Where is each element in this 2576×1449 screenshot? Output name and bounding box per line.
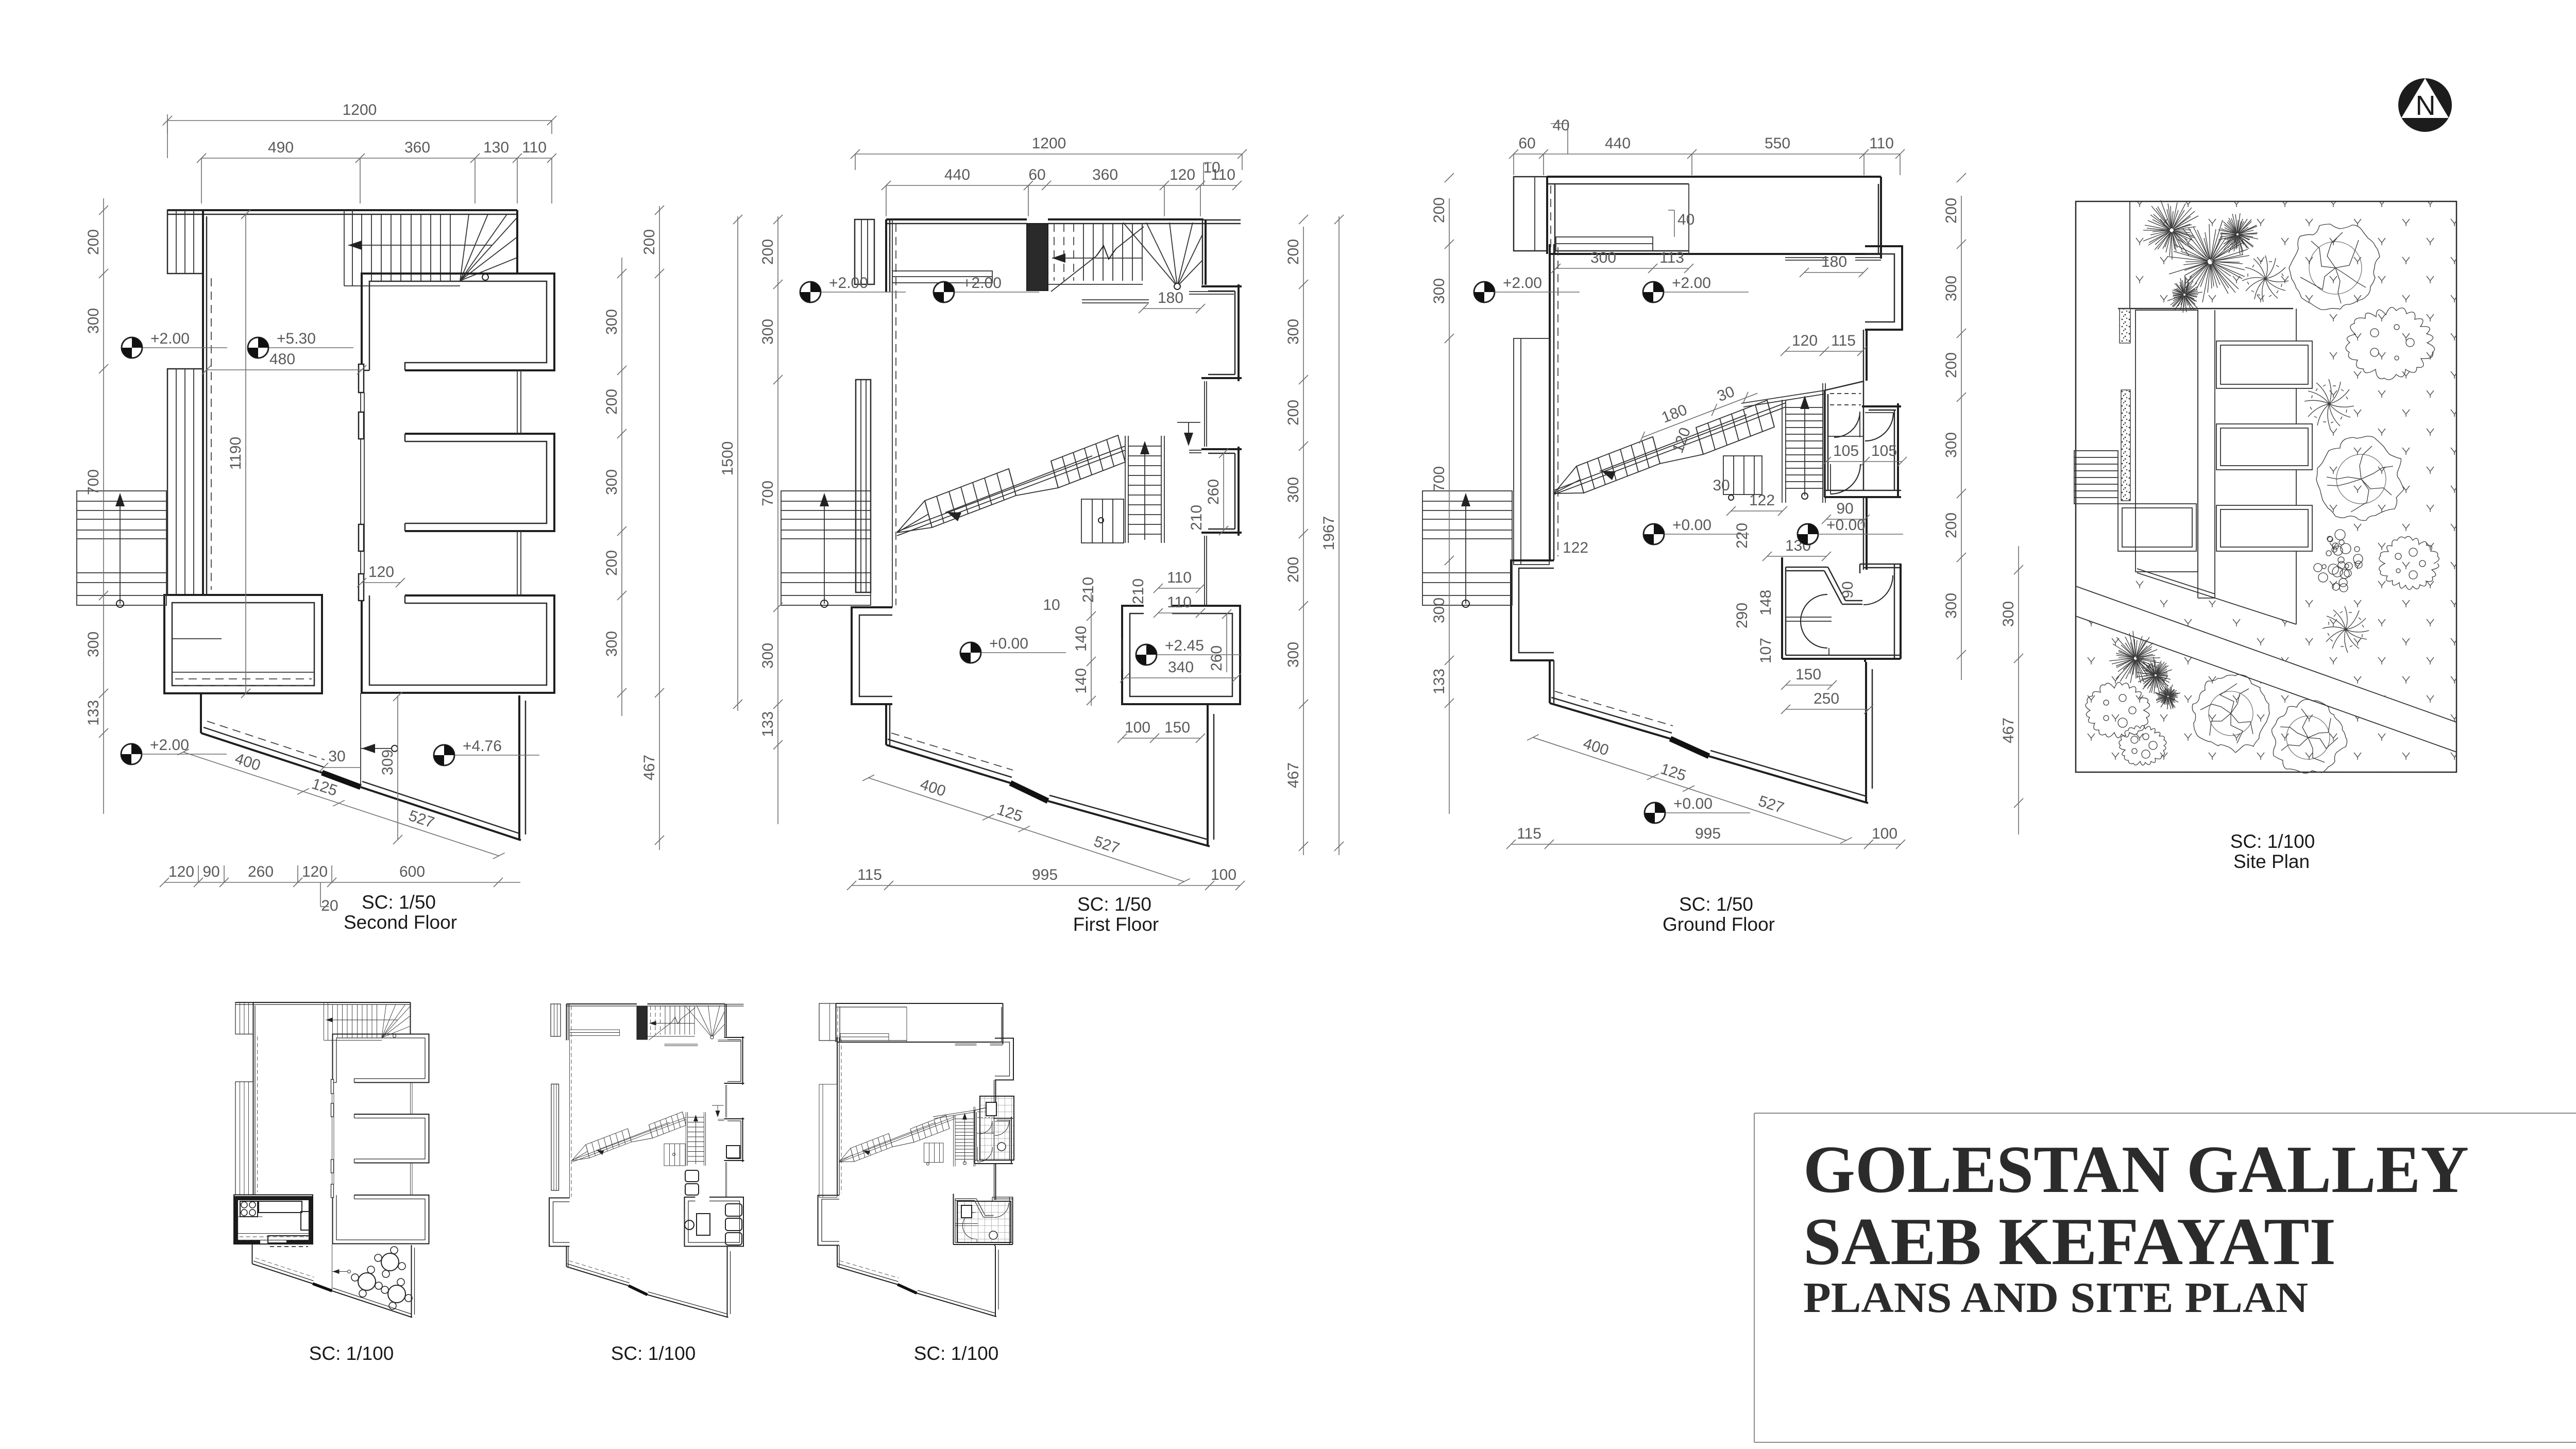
svg-text:300: 300	[1943, 432, 1960, 458]
svg-text:+0.00: +0.00	[1826, 517, 1866, 534]
svg-text:SC: 1/50: SC: 1/50	[1679, 894, 1753, 915]
svg-text:140: 140	[1073, 626, 1090, 652]
svg-text:300: 300	[85, 632, 102, 657]
svg-text:10: 10	[1203, 159, 1220, 176]
svg-text:122: 122	[1749, 492, 1775, 509]
svg-text:+2.00: +2.00	[150, 330, 190, 347]
svg-text:SC: 1/50: SC: 1/50	[1077, 894, 1151, 915]
svg-text:107: 107	[1757, 638, 1774, 663]
svg-text:995: 995	[1695, 825, 1721, 842]
svg-text:+2.00: +2.00	[962, 275, 1002, 292]
svg-text:+4.76: +4.76	[463, 738, 502, 755]
svg-text:40: 40	[1552, 117, 1569, 134]
svg-text:120: 120	[1792, 332, 1818, 349]
svg-text:+0.00: +0.00	[1672, 517, 1711, 534]
svg-text:200: 200	[759, 239, 776, 265]
svg-text:120: 120	[302, 863, 328, 880]
svg-text:SC: 1/50: SC: 1/50	[362, 892, 436, 913]
svg-text:60: 60	[1028, 166, 1045, 183]
svg-text:30: 30	[328, 748, 345, 765]
svg-text:260: 260	[1205, 479, 1222, 505]
svg-text:SC: 1/100: SC: 1/100	[2230, 831, 2315, 852]
svg-text:300: 300	[1431, 278, 1448, 304]
svg-text:SC: 1/100: SC: 1/100	[611, 1343, 696, 1364]
svg-text:290: 290	[1734, 603, 1751, 628]
svg-text:150: 150	[1795, 666, 1821, 683]
svg-text:300: 300	[759, 319, 776, 345]
svg-text:995: 995	[1032, 866, 1058, 883]
svg-text:First Floor: First Floor	[1073, 914, 1159, 935]
svg-text:113: 113	[1659, 249, 1684, 266]
svg-text:490: 490	[268, 139, 294, 156]
svg-text:90: 90	[1839, 581, 1856, 598]
svg-text:+2.00: +2.00	[829, 275, 868, 292]
svg-text:550: 550	[1765, 135, 1790, 152]
svg-text:300: 300	[1285, 642, 1302, 668]
svg-text:300: 300	[759, 643, 776, 669]
svg-text:+5.30: +5.30	[277, 330, 316, 347]
svg-text:100: 100	[1211, 866, 1236, 883]
svg-text:90: 90	[202, 863, 219, 880]
svg-text:110: 110	[522, 139, 547, 156]
svg-text:467: 467	[2000, 718, 2017, 743]
svg-text:1967: 1967	[1320, 516, 1337, 551]
svg-text:210: 210	[1130, 578, 1147, 604]
svg-text:110: 110	[1167, 569, 1192, 586]
svg-text:+0.00: +0.00	[989, 635, 1028, 652]
svg-text:300: 300	[85, 308, 102, 334]
svg-text:260: 260	[1208, 645, 1225, 671]
svg-text:200: 200	[641, 229, 658, 255]
svg-text:200: 200	[1943, 352, 1960, 378]
svg-text:200: 200	[1285, 557, 1302, 583]
svg-text:115: 115	[1831, 332, 1856, 349]
svg-text:120: 120	[168, 863, 194, 880]
svg-text:110: 110	[1869, 135, 1894, 152]
svg-text:150: 150	[1164, 719, 1190, 736]
svg-text:Ground Floor: Ground Floor	[1663, 914, 1775, 935]
svg-text:300: 300	[603, 469, 620, 495]
svg-text:PLANS AND SITE PLAN: PLANS AND SITE PLAN	[1803, 1274, 2308, 1322]
svg-text:+0.00: +0.00	[1673, 795, 1713, 812]
svg-text:60: 60	[1518, 135, 1535, 152]
svg-text:600: 600	[399, 863, 425, 880]
svg-text:250: 250	[1814, 690, 1839, 707]
svg-text:SC: 1/100: SC: 1/100	[309, 1343, 394, 1364]
svg-text:148: 148	[1757, 590, 1774, 616]
svg-text:Site Plan: Site Plan	[2233, 851, 2310, 872]
svg-text:300: 300	[603, 631, 620, 657]
svg-text:200: 200	[1943, 198, 1960, 224]
svg-text:130: 130	[483, 139, 509, 156]
svg-text:+2.00: +2.00	[1503, 275, 1542, 292]
svg-text:1200: 1200	[343, 101, 377, 118]
svg-text:GOLESTAN GALLEY: GOLESTAN GALLEY	[1803, 1132, 2469, 1207]
svg-text:467: 467	[641, 755, 658, 780]
svg-text:700: 700	[85, 469, 102, 495]
svg-text:200: 200	[1285, 239, 1302, 265]
svg-text:10: 10	[1043, 596, 1060, 613]
svg-text:300: 300	[1943, 276, 1960, 301]
svg-text:SC: 1/100: SC: 1/100	[914, 1343, 999, 1364]
svg-text:200: 200	[1285, 400, 1302, 425]
svg-text:180: 180	[1158, 289, 1183, 306]
svg-text:105: 105	[1833, 442, 1859, 459]
svg-text:133: 133	[1431, 669, 1448, 694]
svg-text:440: 440	[1605, 135, 1631, 152]
svg-text:300: 300	[603, 309, 620, 335]
svg-text:700: 700	[759, 481, 776, 506]
svg-text:30: 30	[1713, 477, 1730, 494]
svg-text:480: 480	[269, 351, 295, 368]
svg-text:133: 133	[759, 711, 776, 737]
svg-text:200: 200	[603, 550, 620, 576]
svg-text:SAEB KEFAYATI: SAEB KEFAYATI	[1803, 1204, 2336, 1279]
svg-text:360: 360	[404, 139, 430, 156]
svg-text:360: 360	[1092, 166, 1118, 183]
svg-text:115: 115	[857, 866, 882, 883]
svg-text:1500: 1500	[719, 441, 736, 476]
svg-text:200: 200	[603, 389, 620, 415]
svg-text:467: 467	[1285, 762, 1302, 788]
svg-text:N: N	[2416, 90, 2436, 121]
svg-text:1200: 1200	[1032, 135, 1066, 152]
svg-text:309: 309	[379, 749, 396, 775]
svg-text:300: 300	[1431, 598, 1448, 623]
svg-text:133: 133	[85, 700, 102, 726]
svg-text:110: 110	[1167, 594, 1192, 611]
svg-text:220: 220	[1734, 523, 1751, 549]
svg-text:40: 40	[1677, 211, 1694, 228]
svg-text:200: 200	[85, 229, 102, 255]
svg-text:340: 340	[1168, 659, 1194, 676]
svg-text:260: 260	[248, 863, 274, 880]
svg-text:300: 300	[1943, 593, 1960, 619]
svg-text:90: 90	[1836, 500, 1853, 517]
svg-text:1190: 1190	[227, 437, 244, 470]
svg-text:+2.00: +2.00	[150, 737, 189, 754]
svg-text:140: 140	[1073, 668, 1090, 694]
svg-text:700: 700	[1431, 466, 1448, 492]
svg-text:210: 210	[1188, 505, 1205, 531]
svg-text:+2.45: +2.45	[1165, 637, 1204, 654]
svg-text:180: 180	[1821, 253, 1847, 270]
svg-text:120: 120	[1170, 166, 1195, 183]
svg-text:122: 122	[1563, 539, 1588, 556]
svg-text:+2.00: +2.00	[1672, 275, 1711, 292]
svg-text:440: 440	[944, 166, 970, 183]
svg-text:300: 300	[1285, 319, 1302, 345]
svg-text:105: 105	[1871, 442, 1897, 459]
svg-text:Second Floor: Second Floor	[344, 912, 457, 933]
svg-text:300: 300	[1285, 477, 1302, 503]
svg-text:300: 300	[2000, 601, 2017, 627]
svg-text:300: 300	[1590, 249, 1616, 266]
svg-text:120: 120	[368, 564, 394, 581]
svg-text:200: 200	[1431, 197, 1448, 223]
svg-text:100: 100	[1872, 825, 1897, 842]
svg-text:115: 115	[1517, 825, 1541, 842]
svg-text:20: 20	[321, 897, 338, 914]
svg-text:210: 210	[1080, 577, 1097, 603]
svg-text:100: 100	[1125, 719, 1150, 736]
svg-text:200: 200	[1943, 513, 1960, 538]
